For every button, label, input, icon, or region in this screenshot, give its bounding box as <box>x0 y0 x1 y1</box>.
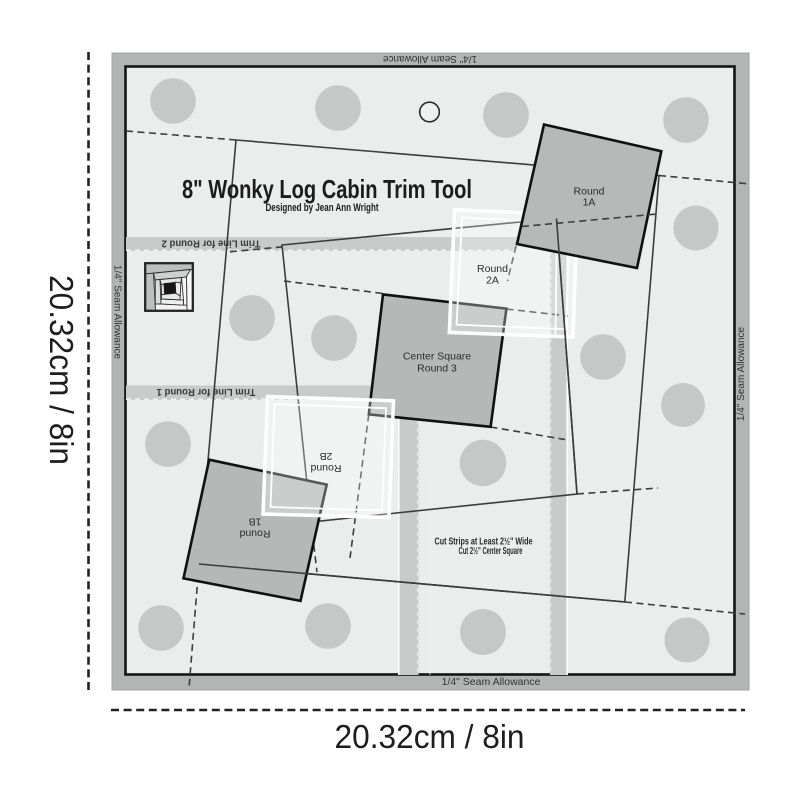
svg-text:20.32cm / 8in: 20.32cm / 8in <box>335 718 525 755</box>
svg-text:Round: Round <box>310 462 341 474</box>
svg-text:1/4" Seam Allowance: 1/4" Seam Allowance <box>442 676 541 688</box>
svg-text:1/4" Seam Allowance: 1/4" Seam Allowance <box>736 326 747 421</box>
svg-text:Trim Line for Round 2: Trim Line for Round 2 <box>161 237 261 248</box>
svg-text:2A: 2A <box>486 275 499 287</box>
svg-text:1/4" Seam Allowance: 1/4" Seam Allowance <box>382 53 477 64</box>
svg-text:8" Wonky Log Cabin Trim Tool: 8" Wonky Log Cabin Trim Tool <box>182 174 472 204</box>
svg-text:Round: Round <box>574 185 605 197</box>
svg-text:2B: 2B <box>320 450 333 462</box>
svg-text:Round: Round <box>477 263 508 275</box>
svg-text:Round: Round <box>239 528 270 540</box>
svg-text:20.32cm / 8in: 20.32cm / 8in <box>43 275 80 465</box>
svg-text:1A: 1A <box>583 197 596 209</box>
svg-text:1/4" Seam Allowance: 1/4" Seam Allowance <box>112 265 123 360</box>
svg-text:Cut 2½" Center Square: Cut 2½" Center Square <box>459 546 523 557</box>
svg-text:Center Square: Center Square <box>403 351 471 363</box>
svg-text:1B: 1B <box>249 516 262 528</box>
svg-text:Trim Line for Round 1: Trim Line for Round 1 <box>156 386 256 397</box>
svg-text:Designed by Jean Ann Wright: Designed by Jean Ann Wright <box>266 202 379 214</box>
svg-text:Round 3: Round 3 <box>417 363 457 375</box>
